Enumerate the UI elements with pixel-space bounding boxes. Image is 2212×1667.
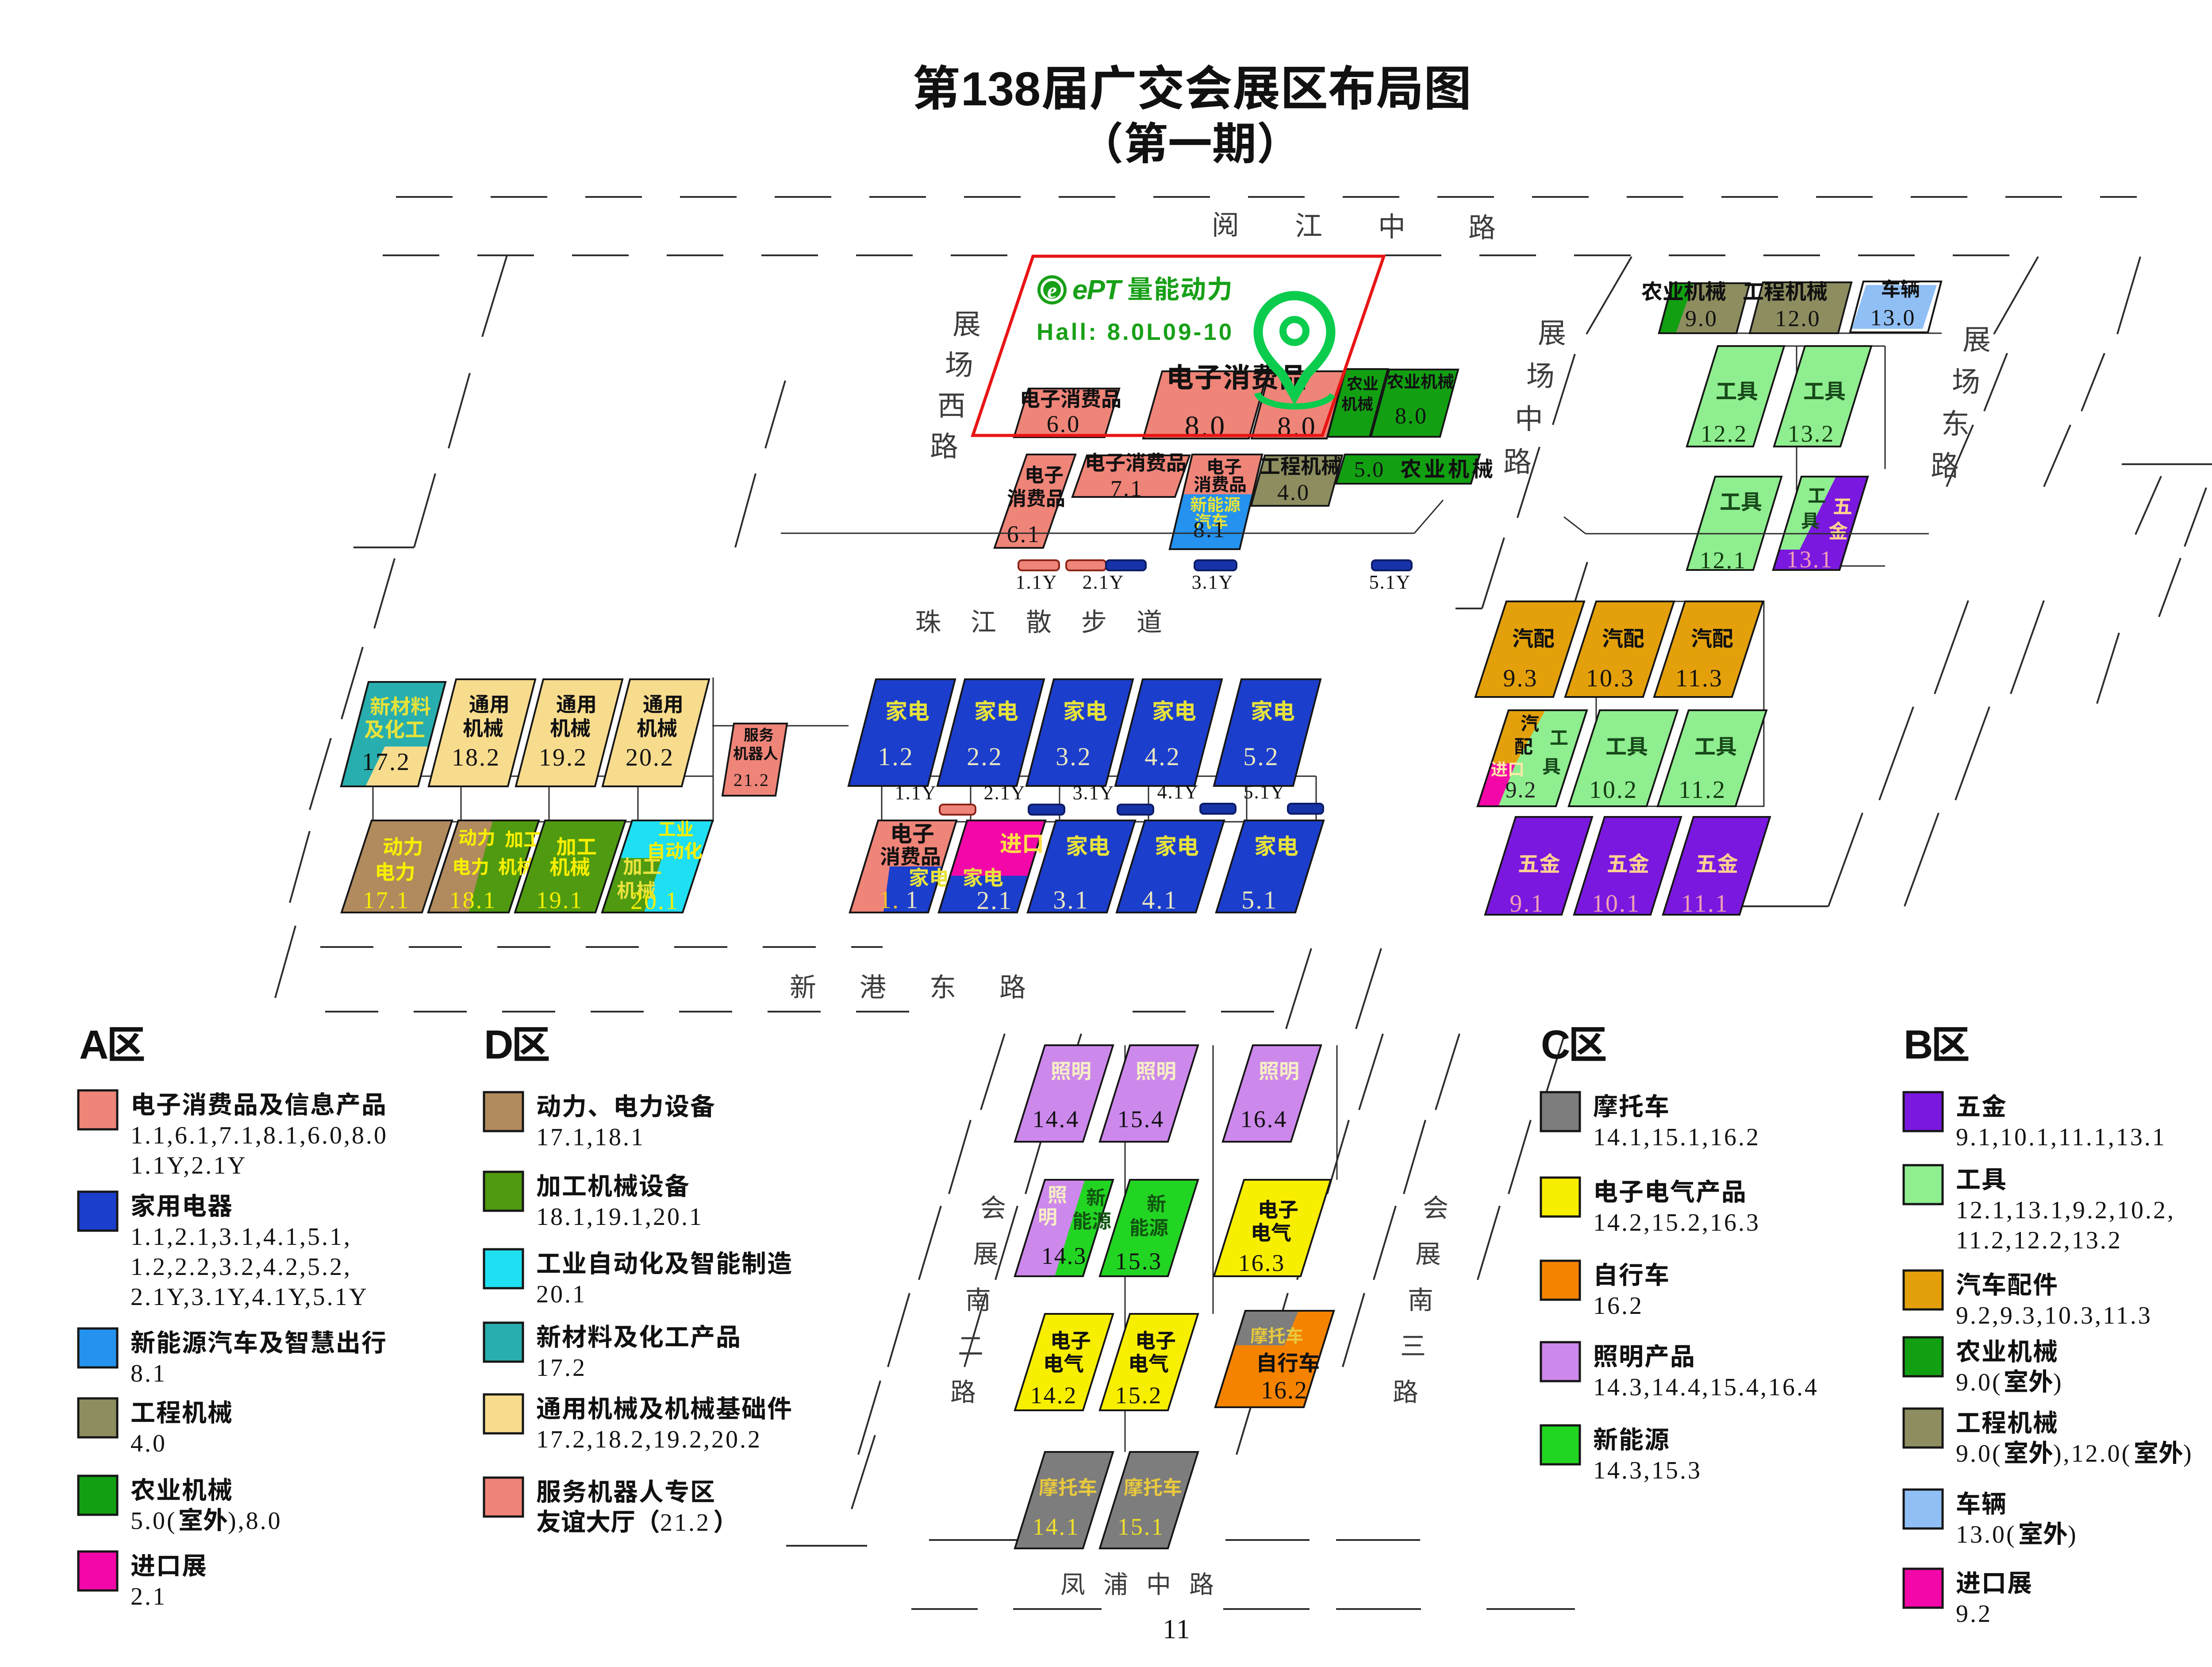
svg-text:9.0(: 9.0( — [1956, 1440, 2002, 1467]
svg-text:9.1: 9.1 — [1510, 890, 1545, 917]
svg-text:5.2: 5.2 — [1243, 742, 1279, 771]
svg-text:13.1: 13.1 — [1786, 546, 1834, 573]
svg-text:18.1,19.1,20.1: 18.1,19.1,20.1 — [536, 1203, 703, 1231]
svg-text:11.2,12.2,13.2: 11.2,12.2,13.2 — [1956, 1227, 2122, 1254]
svg-text:11.2: 11.2 — [1678, 776, 1726, 804]
svg-text:8.0: 8.0 — [1395, 404, 1428, 429]
svg-text:15.4: 15.4 — [1118, 1106, 1165, 1132]
svg-text:e: e — [1047, 278, 1057, 303]
svg-text:14.1: 14.1 — [1033, 1513, 1080, 1540]
svg-text:18.2: 18.2 — [452, 744, 500, 771]
svg-text:17.2: 17.2 — [536, 1354, 587, 1382]
svg-text:9.2,9.3,10.3,11.3: 9.2,9.3,10.3,11.3 — [1956, 1302, 2152, 1329]
svg-text:1: 1 — [906, 886, 919, 914]
svg-text:4.0: 4.0 — [131, 1430, 167, 1457]
svg-text:),8.0: ),8.0 — [228, 1507, 282, 1535]
svg-text:5.0: 5.0 — [1354, 457, 1385, 481]
svg-text:6.0: 6.0 — [1047, 411, 1081, 437]
svg-text:5.1: 5.1 — [1241, 885, 1278, 914]
svg-text:2.2: 2.2 — [967, 742, 1003, 771]
svg-text:A: A — [79, 1022, 108, 1067]
svg-text:14.2,15.2,16.3: 14.2,15.2,16.3 — [1593, 1209, 1760, 1236]
svg-text:21.2: 21.2 — [660, 1509, 710, 1536]
svg-text:5.0(: 5.0( — [131, 1507, 177, 1535]
svg-text:4.1: 4.1 — [1142, 885, 1178, 914]
svg-text:14.3: 14.3 — [1041, 1243, 1087, 1269]
svg-text:138: 138 — [961, 62, 1041, 115]
svg-text:9.2: 9.2 — [1505, 778, 1537, 803]
svg-text:12.1: 12.1 — [1700, 547, 1747, 574]
svg-text:9.3: 9.3 — [1503, 665, 1538, 692]
svg-text:17.2,18.2,19.2,20.2: 17.2,18.2,19.2,20.2 — [536, 1426, 762, 1453]
svg-text:8.0: 8.0 — [1185, 410, 1227, 443]
svg-text:16.3: 16.3 — [1238, 1250, 1286, 1276]
svg-text:1.1,2.1,3.1,4.1,5.1,: 1.1,2.1,3.1,4.1,5.1, — [131, 1223, 352, 1251]
svg-text:14.3,15.3: 14.3,15.3 — [1593, 1457, 1702, 1484]
svg-text:18.1: 18.1 — [449, 887, 497, 913]
svg-text:D: D — [484, 1022, 513, 1067]
svg-text:): ) — [2068, 1521, 2078, 1548]
svg-text:16.2: 16.2 — [1261, 1377, 1308, 1404]
svg-text:17.1: 17.1 — [363, 887, 410, 913]
svg-text:1.2,2.2,3.2,4.2,5.2,: 1.2,2.2,3.2,4.2,5.2, — [131, 1253, 352, 1281]
svg-text:10.2: 10.2 — [1589, 776, 1638, 804]
svg-text:3.1Y: 3.1Y — [1073, 782, 1115, 804]
svg-text:13.0: 13.0 — [1870, 305, 1916, 331]
svg-text:2.1Y: 2.1Y — [1083, 571, 1125, 593]
svg-text:): ) — [2183, 1440, 2193, 1467]
svg-text:20.2: 20.2 — [626, 744, 674, 771]
svg-text:9.1,10.1,11.1,13.1: 9.1,10.1,11.1,13.1 — [1956, 1124, 2166, 1151]
svg-text:): ) — [2053, 1369, 2063, 1396]
svg-text:9.2: 9.2 — [1956, 1600, 1992, 1628]
svg-text:Hall: 8.0L09-10: Hall: 8.0L09-10 — [1037, 319, 1234, 345]
svg-text:8.0: 8.0 — [1277, 412, 1317, 442]
svg-text:2.1Y,3.1Y,4.1Y,5.1Y: 2.1Y,3.1Y,4.1Y,5.1Y — [131, 1283, 369, 1311]
svg-text:B: B — [1904, 1022, 1933, 1067]
svg-text:C: C — [1541, 1022, 1570, 1067]
svg-text:11.1: 11.1 — [1681, 890, 1729, 917]
svg-text:1.: 1. — [879, 886, 899, 914]
svg-text:16.4: 16.4 — [1240, 1106, 1288, 1132]
svg-text:15.2: 15.2 — [1115, 1382, 1163, 1409]
svg-text:13.2: 13.2 — [1788, 420, 1835, 447]
svg-text:1.1Y: 1.1Y — [895, 782, 937, 804]
svg-text:17.1,18.1: 17.1,18.1 — [536, 1124, 645, 1151]
svg-text:14.3,14.4,15.4,16.4: 14.3,14.4,15.4,16.4 — [1593, 1374, 1819, 1401]
svg-text:7.1: 7.1 — [1110, 476, 1143, 501]
svg-text:14.4: 14.4 — [1033, 1106, 1080, 1132]
svg-text:6.1: 6.1 — [1007, 521, 1041, 547]
svg-text:3.1: 3.1 — [1053, 885, 1089, 914]
svg-text:3.1Y: 3.1Y — [1192, 571, 1234, 593]
svg-text:9.0: 9.0 — [1685, 306, 1718, 331]
svg-text:12.2: 12.2 — [1701, 420, 1748, 447]
svg-text:14.2: 14.2 — [1030, 1382, 1078, 1409]
svg-text:12.1,13.1,9.2,10.2,: 12.1,13.1,9.2,10.2, — [1956, 1197, 2175, 1224]
svg-text:5.1Y: 5.1Y — [1244, 781, 1286, 803]
svg-text:12.0: 12.0 — [1775, 306, 1821, 331]
svg-text:2.1Y: 2.1Y — [984, 782, 1026, 804]
svg-text:2.1: 2.1 — [976, 886, 1013, 915]
svg-text:3.2: 3.2 — [1056, 742, 1092, 771]
svg-text:1.2: 1.2 — [878, 742, 914, 771]
svg-text:19.2: 19.2 — [539, 744, 588, 771]
svg-text:2.1: 2.1 — [131, 1583, 167, 1610]
svg-text:8.1: 8.1 — [1193, 517, 1226, 543]
svg-text:1.1Y,2.1Y: 1.1Y,2.1Y — [131, 1152, 247, 1179]
svg-text:17.2: 17.2 — [362, 748, 411, 776]
svg-text:ePT: ePT — [1072, 275, 1123, 305]
svg-text:20.1: 20.1 — [536, 1281, 587, 1308]
svg-text:4.0: 4.0 — [1277, 480, 1310, 505]
svg-text:11: 11 — [1163, 1614, 1191, 1644]
svg-text:9.0(: 9.0( — [1956, 1369, 2002, 1396]
svg-text:11.3: 11.3 — [1675, 665, 1723, 692]
svg-text:1.1,6.1,7.1,8.1,6.0,8.0: 1.1,6.1,7.1,8.1,6.0,8.0 — [131, 1122, 388, 1149]
svg-text:4.2: 4.2 — [1144, 742, 1181, 771]
svg-text:1.1Y: 1.1Y — [1016, 571, 1058, 593]
svg-text:8.1: 8.1 — [131, 1360, 167, 1387]
svg-text:13.0(: 13.0( — [1956, 1521, 2016, 1548]
svg-text:4.1Y: 4.1Y — [1157, 781, 1199, 803]
svg-text:21.2: 21.2 — [733, 770, 770, 790]
svg-text:10.3: 10.3 — [1586, 665, 1635, 692]
svg-text:19.1: 19.1 — [536, 887, 584, 913]
svg-text:5.1Y: 5.1Y — [1369, 571, 1411, 593]
svg-text:20.1: 20.1 — [630, 887, 679, 915]
svg-text:16.2: 16.2 — [1593, 1292, 1644, 1320]
svg-text:15.3: 15.3 — [1115, 1248, 1163, 1274]
svg-text:15.1: 15.1 — [1118, 1513, 1165, 1540]
svg-text:14.1,15.1,16.2: 14.1,15.1,16.2 — [1593, 1124, 1760, 1151]
svg-text:10.1: 10.1 — [1592, 890, 1640, 917]
svg-text:),12.0(: ),12.0( — [2053, 1440, 2131, 1467]
